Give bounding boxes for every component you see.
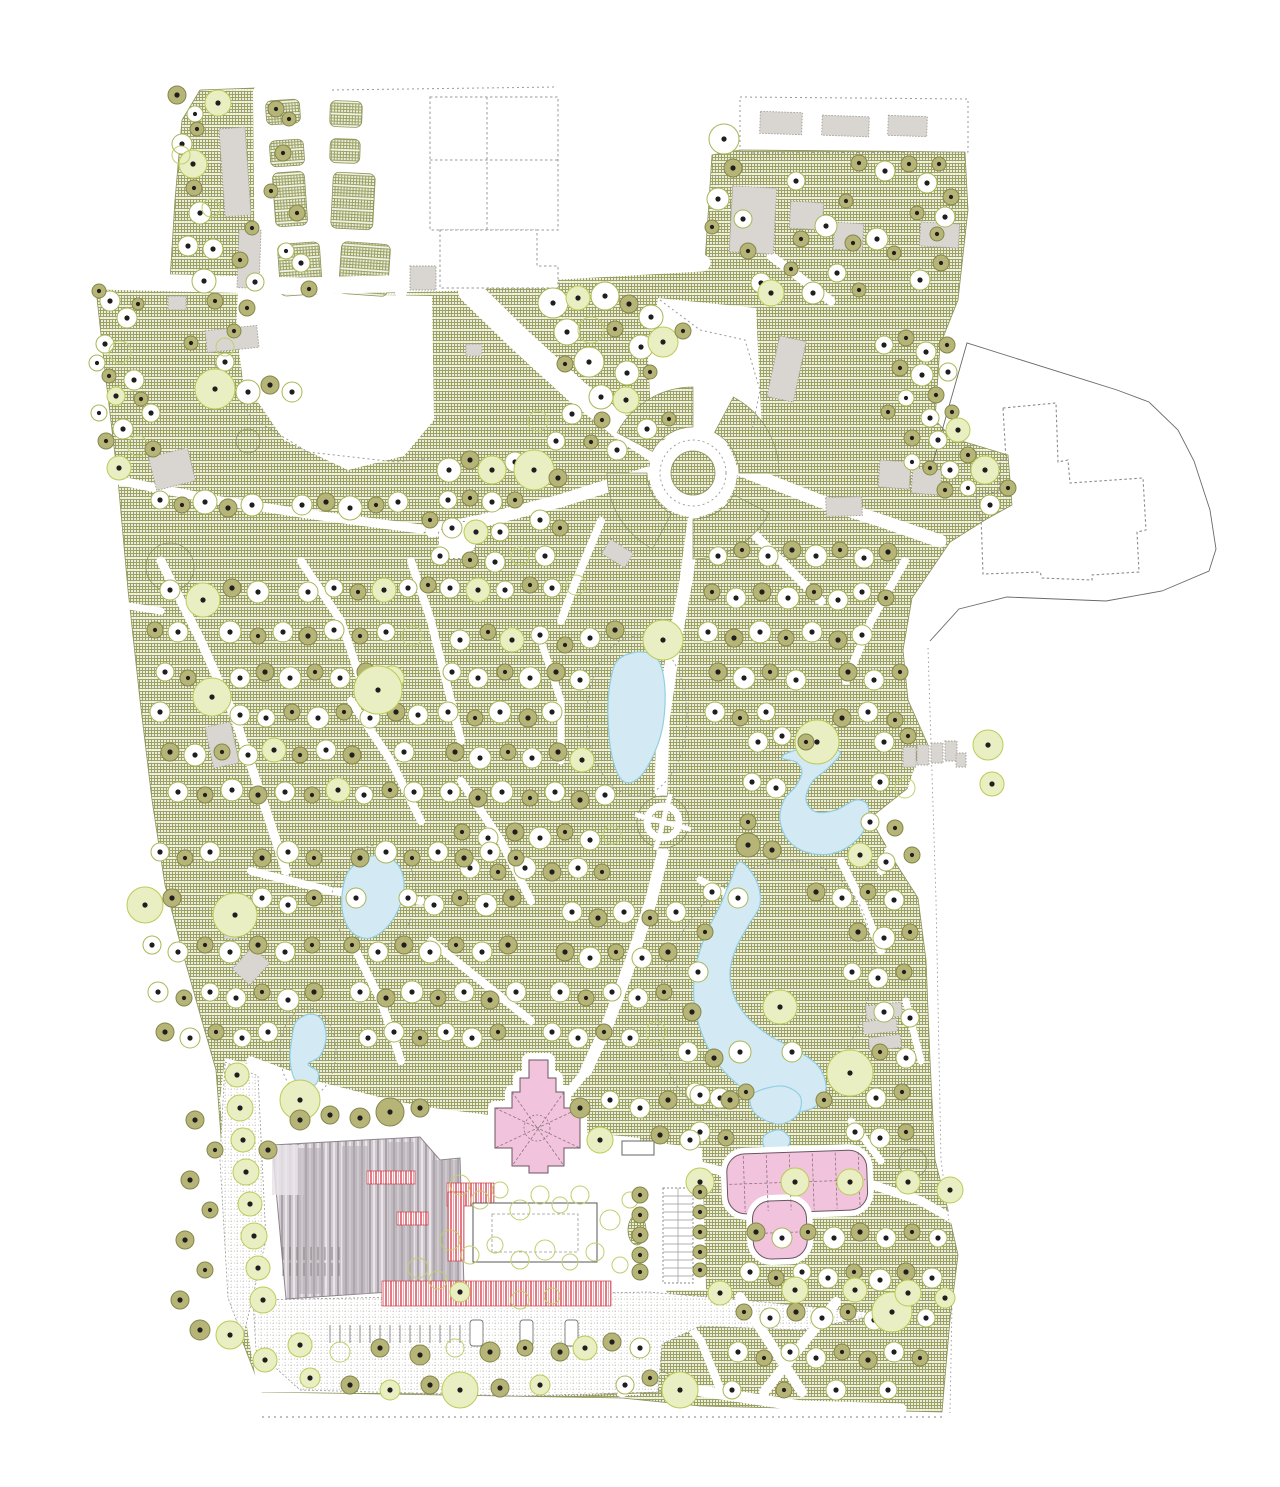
tree-trunk-dot xyxy=(255,942,260,947)
tree-trunk-dot xyxy=(418,1036,422,1040)
tree-trunk-dot xyxy=(665,1097,670,1102)
tree-trunk-dot xyxy=(552,789,557,794)
tree-trunk-dot xyxy=(839,715,844,720)
gray-building xyxy=(888,115,928,136)
tree-trunk-dot xyxy=(852,1270,856,1274)
tree-trunk-dot xyxy=(220,750,224,754)
tree-trunk-dot xyxy=(852,1287,857,1292)
tree-trunk-dot xyxy=(192,186,196,190)
tree-trunk-dot xyxy=(799,237,803,241)
tree-trunk-dot xyxy=(882,168,887,173)
tree-trunk-dot xyxy=(792,1179,797,1184)
tree-trunk-dot xyxy=(935,437,940,442)
tree-trunk-dot xyxy=(285,849,290,854)
gray-building xyxy=(956,753,966,767)
tree-trunk-dot xyxy=(768,290,773,295)
tree-trunk-dot xyxy=(213,299,217,303)
tree-trunk-dot xyxy=(923,349,928,354)
tree-trunk-dot xyxy=(902,970,906,974)
tree-trunk-dot xyxy=(237,675,242,680)
site-plan-canvas xyxy=(0,0,1280,1487)
tree-trunk-dot xyxy=(537,835,542,840)
tree-trunk-dot xyxy=(513,498,517,502)
tree-trunk-dot xyxy=(886,410,890,414)
tree-trunk-dot xyxy=(908,930,912,934)
tree-trunk-dot xyxy=(142,902,147,907)
tree-trunk-dot xyxy=(497,709,502,714)
tree-trunk-dot xyxy=(452,749,457,754)
tree-trunk-dot xyxy=(305,633,310,638)
tree-trunk-dot xyxy=(212,386,217,391)
tree-trunk-dot xyxy=(721,136,726,141)
tree-trunk-dot xyxy=(877,779,882,784)
tree-trunk-dot xyxy=(881,342,886,347)
tree-trunk-dot xyxy=(299,502,304,507)
tree-trunk-dot xyxy=(639,955,644,960)
tree-trunk-dot xyxy=(457,637,462,642)
tree-trunk-dot xyxy=(116,465,121,470)
tree-trunk-dot xyxy=(939,261,943,265)
tree-trunk-dot xyxy=(331,585,336,590)
tree-trunk-dot xyxy=(735,1349,740,1354)
tree-trunk-dot xyxy=(861,555,866,560)
tree-trunk-dot xyxy=(840,1350,844,1354)
tree-trunk-dot xyxy=(774,1276,778,1280)
tree-trunk-dot xyxy=(847,1070,852,1075)
tree-trunk-dot xyxy=(187,1177,192,1182)
tree-trunk-dot xyxy=(295,211,299,215)
tree-trunk-dot xyxy=(238,258,242,262)
tree-trunk-dot xyxy=(374,503,378,507)
tree-trunk-dot xyxy=(923,1315,928,1320)
tree-trunk-dot xyxy=(483,902,488,907)
tree-trunk-dot xyxy=(537,1382,542,1387)
planting-strip xyxy=(331,172,376,230)
tree-trunk-dot xyxy=(846,1310,850,1314)
tree-trunk-dot xyxy=(531,467,536,472)
tree-trunk-dot xyxy=(297,1342,302,1347)
tree-trunk-dot xyxy=(627,1035,632,1040)
tree-trunk-dot xyxy=(174,92,179,97)
tree-trunk-dot xyxy=(297,1117,302,1122)
tree-trunk-dot xyxy=(557,1349,562,1354)
planting-circle xyxy=(236,429,260,453)
tree-trunk-dot xyxy=(915,211,919,215)
tree-trunk-dot xyxy=(443,1029,448,1034)
tree-trunk-dot xyxy=(881,935,886,940)
tree-trunk-dot xyxy=(609,1339,614,1344)
tree-trunk-dot xyxy=(486,630,490,634)
tree-trunk-dot xyxy=(190,161,195,166)
tree-trunk-dot xyxy=(496,870,500,874)
tree-trunk-dot xyxy=(262,1357,267,1362)
tree-trunk-dot xyxy=(598,394,603,399)
tree-trunk-dot xyxy=(255,1265,260,1270)
tree-trunk-dot xyxy=(460,830,464,834)
tree-trunk-dot xyxy=(192,752,197,757)
tree-trunk-dot xyxy=(878,1050,882,1054)
tree-trunk-dot xyxy=(903,1055,908,1060)
tree-trunk-dot xyxy=(907,162,911,166)
tree-trunk-dot xyxy=(929,1275,934,1280)
tree-trunk-dot xyxy=(806,1230,810,1234)
tree-trunk-dot xyxy=(124,315,129,320)
tree-trunk-dot xyxy=(262,669,267,674)
tree-trunk-dot xyxy=(310,793,314,797)
tree-trunk-dot xyxy=(104,439,108,443)
tree-trunk-dot xyxy=(410,856,414,860)
tree-trunk-dot xyxy=(697,1092,702,1097)
tree-trunk-dot xyxy=(461,989,466,994)
tree-trunk-dot xyxy=(485,835,490,840)
tree-trunk-dot xyxy=(813,889,818,894)
tree-trunk-dot xyxy=(249,502,254,507)
tree-trunk-dot xyxy=(947,1187,952,1192)
tree-trunk-dot xyxy=(528,796,532,800)
gray-building xyxy=(903,747,916,767)
tree-trunk-dot xyxy=(461,855,466,860)
gray-building xyxy=(466,344,482,356)
tree-trunk-dot xyxy=(245,752,250,757)
tree-trunk-dot xyxy=(307,1375,312,1380)
tree-trunk-dot xyxy=(383,849,388,854)
tree-trunk-dot xyxy=(310,943,314,947)
tree-trunk-dot xyxy=(782,1388,786,1392)
tree-trunk-dot xyxy=(489,467,494,472)
tree-trunk-dot xyxy=(155,989,160,994)
tree-trunk-dot xyxy=(468,558,472,562)
tree-trunk-dot xyxy=(835,637,840,642)
tree-trunk-dot xyxy=(475,795,480,800)
tree-trunk-dot xyxy=(657,1132,662,1137)
tree-trunk-dot xyxy=(875,975,880,980)
tree-trunk-dot xyxy=(557,989,562,994)
tree-trunk-dot xyxy=(885,549,890,554)
tree-trunk-dot xyxy=(381,587,386,592)
tree-trunk-dot xyxy=(563,362,567,366)
tree-trunk-dot xyxy=(411,789,416,794)
tree-trunk-dot xyxy=(784,636,788,640)
tree-trunk-dot xyxy=(900,1090,904,1094)
tree-trunk-dot xyxy=(595,915,600,920)
tree-trunk-dot xyxy=(210,246,215,251)
tree-trunk-dot xyxy=(660,637,665,642)
tree-trunk-dot xyxy=(698,1230,702,1234)
tree-trunk-dot xyxy=(383,995,388,1000)
tree-trunk-dot xyxy=(513,989,518,994)
tree-trunk-dot xyxy=(387,1387,392,1392)
tree-trunk-dot xyxy=(910,1230,914,1234)
tree-trunk-dot xyxy=(845,669,850,674)
tree-trunk-dot xyxy=(587,955,592,960)
tree-trunk-dot xyxy=(290,710,294,714)
tree-trunk-dot xyxy=(883,1235,888,1240)
tree-trunk-dot xyxy=(468,496,472,500)
tree-trunk-dot xyxy=(323,499,328,504)
tree-trunk-dot xyxy=(555,749,560,754)
tree-trunk-dot xyxy=(638,1253,642,1257)
tree-trunk-dot xyxy=(614,950,618,954)
tree-trunk-dot xyxy=(289,389,294,394)
tree-trunk-dot xyxy=(250,226,254,230)
tree-trunk-dot xyxy=(447,789,452,794)
gray-building xyxy=(822,115,870,137)
tree-trunk-dot xyxy=(564,329,569,334)
tree-trunk-dot xyxy=(358,634,362,638)
park-path xyxy=(323,100,327,296)
tree-trunk-dot xyxy=(284,249,288,253)
tree-trunk-dot xyxy=(563,830,567,834)
tree-trunk-dot xyxy=(102,341,107,346)
tree-trunk-dot xyxy=(910,853,914,857)
tree-trunk-dot xyxy=(229,585,234,590)
tree-trunk-dot xyxy=(208,1208,212,1212)
tree-trunk-dot xyxy=(245,306,249,310)
tree-trunk-dot xyxy=(405,585,410,590)
site-plan-page xyxy=(0,0,1280,1487)
tree-trunk-dot xyxy=(353,895,358,900)
tree-trunk-dot xyxy=(529,755,534,760)
dotted-guide xyxy=(332,87,556,90)
tree-trunk-dot xyxy=(237,1105,242,1110)
tree-trunk-dot xyxy=(575,1035,580,1040)
tree-trunk-dot xyxy=(698,1190,702,1194)
tree-trunk-dot xyxy=(197,1327,202,1332)
tree-trunk-dot xyxy=(985,742,990,747)
tree-trunk-dot xyxy=(753,1229,758,1234)
park-path xyxy=(395,100,401,292)
tree-trunk-dot xyxy=(638,344,643,349)
tree-trunk-dot xyxy=(698,1250,702,1254)
gray-building xyxy=(219,127,251,217)
tree-trunk-dot xyxy=(186,676,190,680)
tree-trunk-dot xyxy=(271,747,276,752)
campus-outline xyxy=(430,97,558,230)
tree-trunk-dot xyxy=(475,675,480,680)
tree-trunk-dot xyxy=(509,895,514,900)
tree-trunk-dot xyxy=(479,949,484,954)
tree-trunk-dot xyxy=(612,627,617,632)
tree-trunk-dot xyxy=(852,1129,857,1134)
tree-trunk-dot xyxy=(600,418,604,422)
tree-trunk-dot xyxy=(555,475,560,480)
tree-trunk-dot xyxy=(673,909,678,914)
tree-trunk-dot xyxy=(550,300,555,305)
tree-trunk-dot xyxy=(274,107,278,111)
tree-trunk-dot xyxy=(499,789,504,794)
tree-trunk-dot xyxy=(356,590,360,594)
tree-trunk-dot xyxy=(447,585,452,590)
tree-trunk-dot xyxy=(825,1275,830,1280)
tree-trunk-dot xyxy=(203,1268,207,1272)
tree-trunk-dot xyxy=(905,1290,910,1295)
tree-trunk-dot xyxy=(927,415,932,420)
tree-trunk-dot xyxy=(731,635,736,640)
tree-trunk-dot xyxy=(549,709,554,714)
tree-trunk-dot xyxy=(907,1015,912,1020)
tree-trunk-dot xyxy=(859,632,864,637)
tree-trunk-dot xyxy=(709,889,714,894)
tree-trunk-dot xyxy=(648,370,652,374)
red-canopy xyxy=(367,1171,415,1184)
tree-trunk-dot xyxy=(136,302,140,306)
tree-trunk-dot xyxy=(497,1385,502,1390)
tree-trunk-dot xyxy=(602,293,607,298)
tree-trunk-dot xyxy=(514,856,518,860)
tree-trunk-dot xyxy=(881,739,886,744)
tree-trunk-dot xyxy=(234,1072,239,1077)
tree-trunk-dot xyxy=(148,410,153,415)
tree-trunk-dot xyxy=(537,632,542,637)
tree-trunk-dot xyxy=(232,329,236,333)
tree-trunk-dot xyxy=(263,715,268,720)
tree-trunk-dot xyxy=(747,1269,752,1274)
tree-trunk-dot xyxy=(95,361,99,365)
tree-trunk-dot xyxy=(847,1179,852,1184)
tree-trunk-dot xyxy=(924,180,929,185)
tree-trunk-dot xyxy=(919,372,924,377)
tree-trunk-dot xyxy=(267,382,272,387)
tree-trunk-dot xyxy=(711,1055,716,1060)
tree-trunk-dot xyxy=(393,709,398,714)
tree-trunk-dot xyxy=(814,739,819,744)
tree-trunk-dot xyxy=(934,393,938,397)
tree-trunk-dot xyxy=(454,943,458,947)
gray-building xyxy=(410,266,436,290)
tree-trunk-dot xyxy=(405,895,410,900)
planting-strip xyxy=(330,138,361,163)
tree-trunk-dot xyxy=(239,1035,244,1040)
tree-trunk-dot xyxy=(885,1387,890,1392)
tree-trunk-dot xyxy=(667,417,671,421)
tree-trunk-dot xyxy=(252,279,257,284)
tree-trunk-dot xyxy=(710,225,714,229)
tree-trunk-dot xyxy=(215,100,220,105)
tree-trunk-dot xyxy=(917,277,922,282)
tree-trunk-dot xyxy=(327,1112,332,1117)
tree-trunk-dot xyxy=(182,1237,187,1242)
tree-trunk-dot xyxy=(621,909,626,914)
tree-trunk-dot xyxy=(185,243,190,248)
tree-trunk-dot xyxy=(904,1130,908,1134)
tree-trunk-dot xyxy=(313,670,317,674)
tree-trunk-dot xyxy=(350,943,354,947)
tree-trunk-dot xyxy=(569,909,574,914)
tree-trunk-dot xyxy=(193,112,197,116)
tree-trunk-dot xyxy=(698,1210,702,1214)
tree-trunk-dot xyxy=(602,792,607,797)
tree-trunk-dot xyxy=(789,547,794,552)
tree-trunk-dot xyxy=(577,677,582,682)
tree-trunk-dot xyxy=(665,949,670,954)
tree-trunk-dot xyxy=(187,1035,192,1040)
tree-trunk-dot xyxy=(638,1233,642,1237)
gray-building xyxy=(917,745,929,765)
tree-trunk-dot xyxy=(768,670,772,674)
tree-trunk-dot xyxy=(203,793,207,797)
tree-trunk-dot xyxy=(409,989,414,994)
tree-trunk-dot xyxy=(955,427,960,432)
tree-trunk-dot xyxy=(626,301,631,306)
tree-trunk-dot xyxy=(662,990,666,994)
tree-trunk-dot xyxy=(857,1229,862,1234)
tree-trunk-dot xyxy=(431,902,436,907)
tree-trunk-dot xyxy=(467,457,472,462)
tree-trunk-dot xyxy=(426,583,430,587)
tree-trunk-dot xyxy=(255,792,260,797)
tree-trunk-dot xyxy=(779,733,784,738)
tree-trunk-dot xyxy=(833,1387,838,1392)
tree-trunk-dot xyxy=(898,670,902,674)
tree-trunk-dot xyxy=(537,517,542,522)
tree-trunk-dot xyxy=(315,715,320,720)
tree-trunk-dot xyxy=(773,785,778,790)
tree-trunk-dot xyxy=(269,189,273,193)
tree-trunk-dot xyxy=(240,1137,245,1142)
tree-trunk-dot xyxy=(793,1309,798,1314)
tree-trunk-dot xyxy=(982,467,987,472)
tree-trunk-dot xyxy=(391,1029,396,1034)
tree-trunk-dot xyxy=(792,1287,797,1292)
tree-trunk-dot xyxy=(247,1201,252,1206)
tree-trunk-dot xyxy=(175,789,180,794)
tree-trunk-dot xyxy=(260,990,264,994)
tree-trunk-dot xyxy=(677,1387,682,1392)
tree-trunk-dot xyxy=(307,287,311,291)
tree-trunk-dot xyxy=(575,295,580,300)
tree-trunk-dot xyxy=(741,675,746,680)
tree-trunk-dot xyxy=(740,216,745,221)
tree-trunk-dot xyxy=(522,865,527,870)
tree-trunk-dot xyxy=(857,852,862,857)
tree-trunk-dot xyxy=(357,1115,362,1120)
tree-trunk-dot xyxy=(214,1030,218,1034)
tree-trunk-dot xyxy=(757,629,762,634)
tree-trunk-dot xyxy=(635,995,640,1000)
tree-trunk-dot xyxy=(417,1105,422,1110)
tree-trunk-dot xyxy=(445,709,450,714)
tree-trunk-dot xyxy=(942,1295,947,1300)
tree-trunk-dot xyxy=(200,597,205,602)
tree-trunk-dot xyxy=(131,377,136,382)
red-canopy xyxy=(382,1281,611,1306)
tree-trunk-dot xyxy=(587,837,592,842)
tree-trunk-dot xyxy=(153,628,157,632)
tree-trunk-dot xyxy=(260,1297,265,1302)
tree-trunk-dot xyxy=(873,1095,878,1100)
tree-trunk-dot xyxy=(949,195,953,199)
tree-trunk-dot xyxy=(638,1213,642,1217)
tree-trunk-dot xyxy=(715,669,720,674)
tree-trunk-dot xyxy=(819,1315,824,1320)
tree-trunk-dot xyxy=(347,505,352,510)
tree-trunk-dot xyxy=(660,339,665,344)
tree-trunk-dot xyxy=(113,393,118,398)
tree-trunk-dot xyxy=(881,1009,886,1014)
tree-trunk-dot xyxy=(987,502,992,507)
tree-trunk-dot xyxy=(891,1349,896,1354)
tree-trunk-dot xyxy=(602,1030,606,1034)
tree-trunk-dot xyxy=(251,1233,256,1238)
tree-trunk-dot xyxy=(225,505,230,510)
tree-trunk-dot xyxy=(710,590,714,594)
tree-trunk-dot xyxy=(943,488,947,492)
tree-trunk-dot xyxy=(375,687,380,692)
tree-trunk-dot xyxy=(207,849,212,854)
tree-trunk-dot xyxy=(549,1029,554,1034)
tree-trunk-dot xyxy=(777,1004,782,1009)
tree-trunk-dot xyxy=(638,1193,642,1197)
